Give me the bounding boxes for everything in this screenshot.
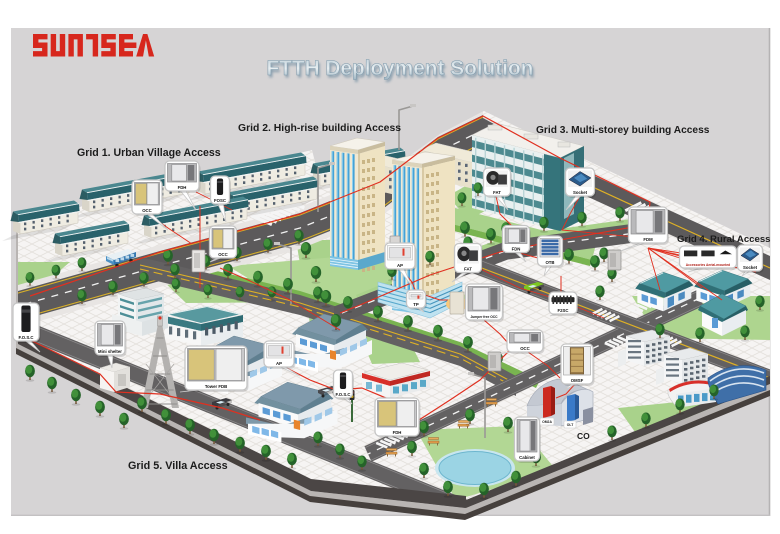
svg-text:Grid 5. Villa Access: Grid 5. Villa Access [128, 460, 228, 472]
svg-text:F.O.S.C: F.O.S.C [18, 335, 33, 340]
svg-text:Grid 3. Multi-storey building: Grid 3. Multi-storey building Access [536, 125, 710, 136]
svg-text:FAT: FAT [464, 266, 472, 271]
svg-text:FOSC: FOSC [214, 198, 226, 203]
svg-text:Tower FDB: Tower FDB [205, 384, 227, 389]
svg-text:TP: TP [413, 302, 419, 307]
svg-text:OTB: OTB [545, 260, 554, 265]
svg-text:FDH: FDH [178, 185, 187, 190]
svg-text:Accessories Aerial-mounted: Accessories Aerial-mounted [686, 263, 730, 267]
svg-text:OMSF: OMSF [571, 378, 584, 383]
svg-text:OCC: OCC [142, 208, 152, 213]
svg-text:FDM: FDM [643, 237, 653, 242]
svg-text:CO: CO [577, 431, 590, 441]
svg-text:AP: AP [276, 361, 282, 366]
svg-text:FDN: FDN [512, 246, 521, 251]
svg-text:Grid 4. Rural Access: Grid 4. Rural Access [677, 234, 771, 245]
svg-text:Socket: Socket [743, 265, 758, 270]
svg-text:Mini shelter: Mini shelter [98, 349, 122, 354]
svg-text:Grid 1. Urban Village Access: Grid 1. Urban Village Access [77, 147, 221, 159]
svg-text:Socket: Socket [573, 190, 588, 195]
svg-text:F2SC: F2SC [558, 308, 569, 313]
svg-text:Cabinet: Cabinet [519, 455, 535, 460]
svg-text:OLT: OLT [567, 423, 574, 427]
svg-text:FAT: FAT [493, 190, 501, 195]
svg-text:OM2A: OM2A [542, 420, 552, 424]
svg-text:FTTH Deployment Solution: FTTH Deployment Solution [267, 57, 534, 80]
svg-text:Jumper free OCC: Jumper free OCC [470, 315, 498, 319]
svg-text:OCC: OCC [520, 346, 530, 351]
svg-text:F.O.S.C: F.O.S.C [335, 392, 350, 397]
svg-text:OCC: OCC [218, 252, 228, 257]
svg-text:Grid 2. High-rise building Acc: Grid 2. High-rise building Access [238, 123, 401, 134]
svg-text:AP: AP [397, 263, 403, 268]
svg-text:FDH: FDH [393, 430, 402, 435]
